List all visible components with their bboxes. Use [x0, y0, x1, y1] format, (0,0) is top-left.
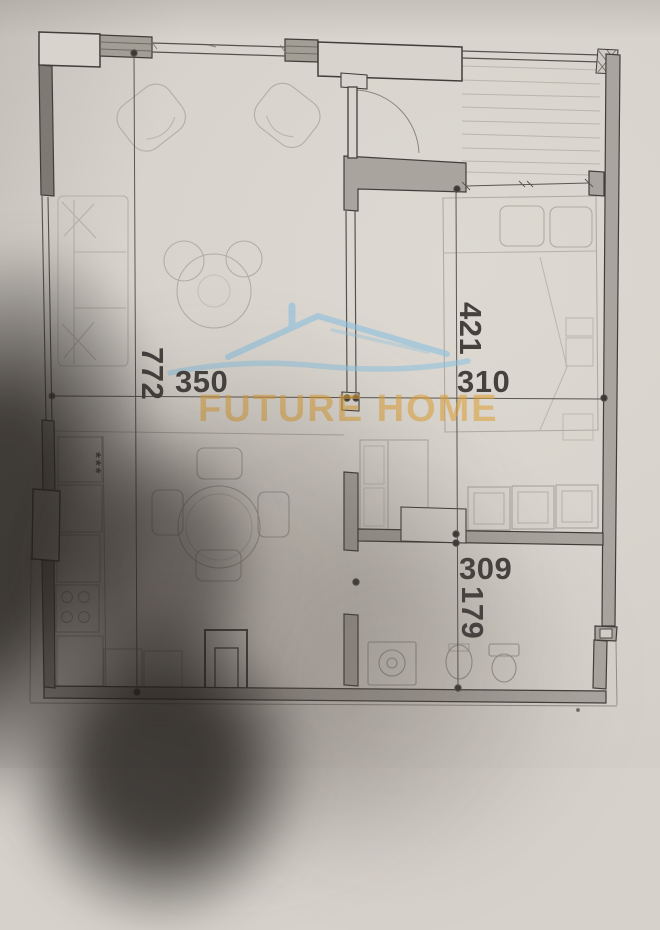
watermark-brand: FUTURE HOME: [198, 388, 499, 431]
floor-plan-photo: FUTURE HOME 772 350 421 310 309 179 ***: [0, 0, 660, 768]
kitchen-star-marks: ***: [87, 452, 104, 476]
dim-label-bedroom-width: 310: [457, 366, 510, 397]
dim-label-overall-height: 772: [137, 347, 168, 400]
house-roof-icon: [170, 306, 468, 373]
dim-label-bathroom-depth: 179: [457, 586, 488, 639]
dim-label-bedroom-depth: 421: [455, 302, 486, 355]
dim-label-bathroom-width: 309: [459, 553, 512, 584]
dim-label-living-width: 350: [175, 366, 228, 397]
watermark-logo: [0, 0, 660, 768]
